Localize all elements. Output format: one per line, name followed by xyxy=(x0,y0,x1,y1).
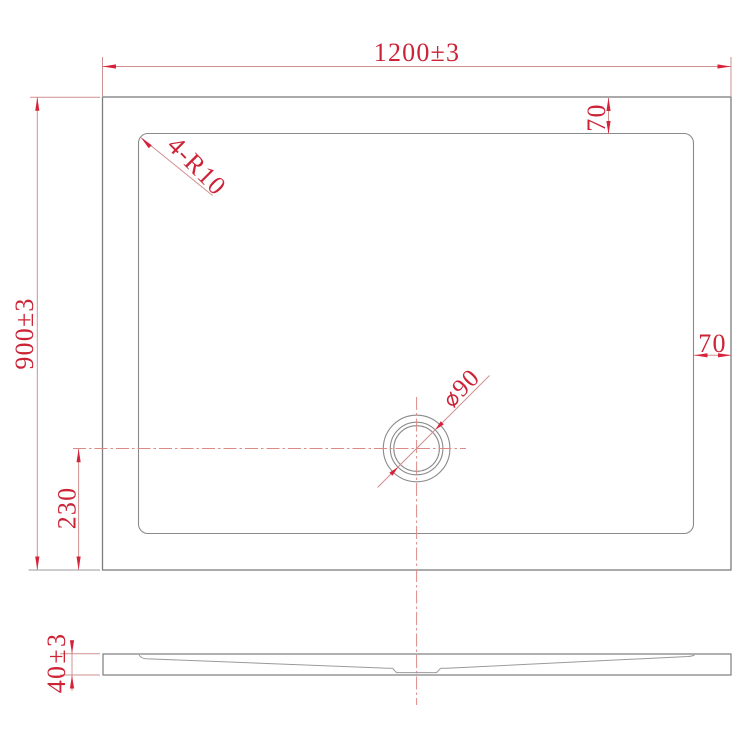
svg-text:70: 70 xyxy=(582,103,611,131)
svg-text:1200±3: 1200±3 xyxy=(374,38,460,67)
svg-text:230: 230 xyxy=(53,487,82,530)
svg-text:40±3: 40±3 xyxy=(42,633,71,693)
svg-text:4-R10: 4-R10 xyxy=(162,131,233,202)
svg-text:70: 70 xyxy=(698,329,726,358)
svg-text:900±3: 900±3 xyxy=(10,297,39,369)
svg-text:90: 90 xyxy=(447,364,485,402)
